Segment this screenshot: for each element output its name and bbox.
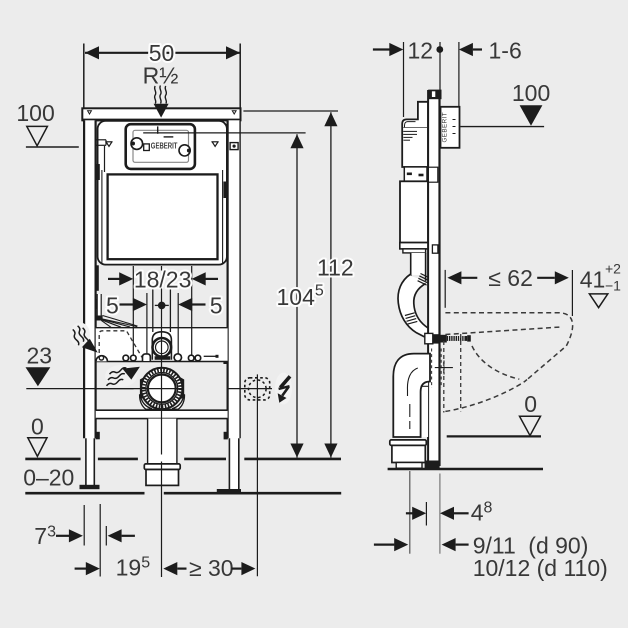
svg-text:12: 12 [408, 38, 434, 64]
svg-text:100: 100 [16, 100, 54, 126]
svg-text:0: 0 [524, 391, 537, 417]
svg-text:≤ 62: ≤ 62 [488, 265, 533, 291]
svg-text:0–20: 0–20 [23, 464, 74, 490]
svg-text:1-6: 1-6 [489, 38, 522, 64]
svg-text:100: 100 [512, 80, 550, 106]
svg-text:+2: +2 [605, 261, 621, 277]
svg-text:0: 0 [31, 413, 44, 439]
svg-text:5: 5 [210, 293, 223, 319]
svg-text:5: 5 [106, 293, 119, 319]
svg-text:R½: R½ [143, 63, 179, 89]
svg-text:41: 41 [580, 266, 606, 292]
svg-text:10/12 (d 110): 10/12 (d 110) [473, 555, 608, 581]
svg-text:23: 23 [27, 342, 53, 368]
svg-text:≥ 30: ≥ 30 [189, 555, 234, 581]
svg-text:112: 112 [317, 255, 354, 281]
svg-text:−1: −1 [605, 278, 621, 294]
svg-text:GEBERIT: GEBERIT [151, 142, 178, 151]
svg-text:GEBERIT: GEBERIT [442, 112, 449, 142]
svg-text:18/23: 18/23 [134, 266, 192, 292]
